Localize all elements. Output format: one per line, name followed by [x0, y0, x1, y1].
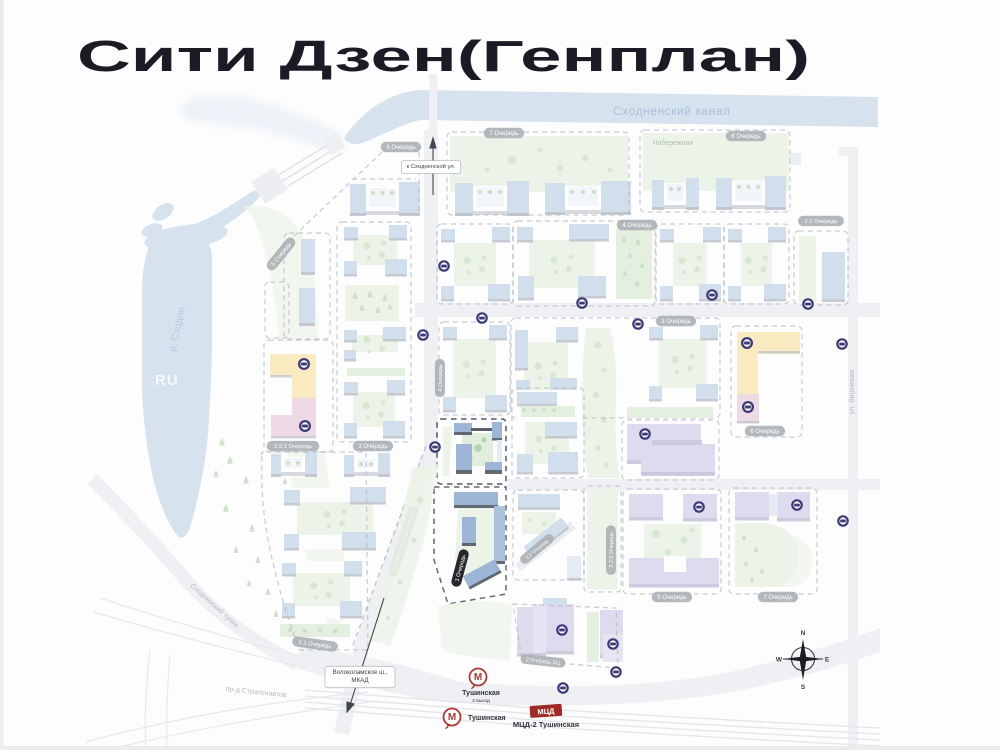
svg-text:Волоколамское ш.,: Волоколамское ш.,	[333, 669, 388, 676]
svg-text:3 выход: 3 выход	[472, 698, 490, 704]
svg-text:МЦД: МЦД	[537, 706, 555, 716]
svg-text:МЦД-2 Тушинская: МЦД-2 Тушинская	[513, 720, 579, 729]
svg-text:W: W	[776, 657, 783, 664]
svg-text:Сити Дзен(Генплан): Сити Дзен(Генплан)	[77, 32, 810, 81]
svg-text:МКАД: МКАД	[351, 677, 369, 684]
svg-text:Тушинская: Тушинская	[468, 715, 506, 722]
svg-text:к Сходненской ул.: к Сходненской ул.	[407, 163, 456, 170]
svg-text:М: М	[448, 712, 456, 723]
svg-text:S: S	[801, 684, 806, 691]
svg-text:N: N	[801, 630, 806, 637]
svg-text:М: М	[474, 672, 482, 683]
svg-text:Тушинская: Тушинская	[462, 690, 500, 697]
svg-text:E: E	[825, 657, 830, 664]
